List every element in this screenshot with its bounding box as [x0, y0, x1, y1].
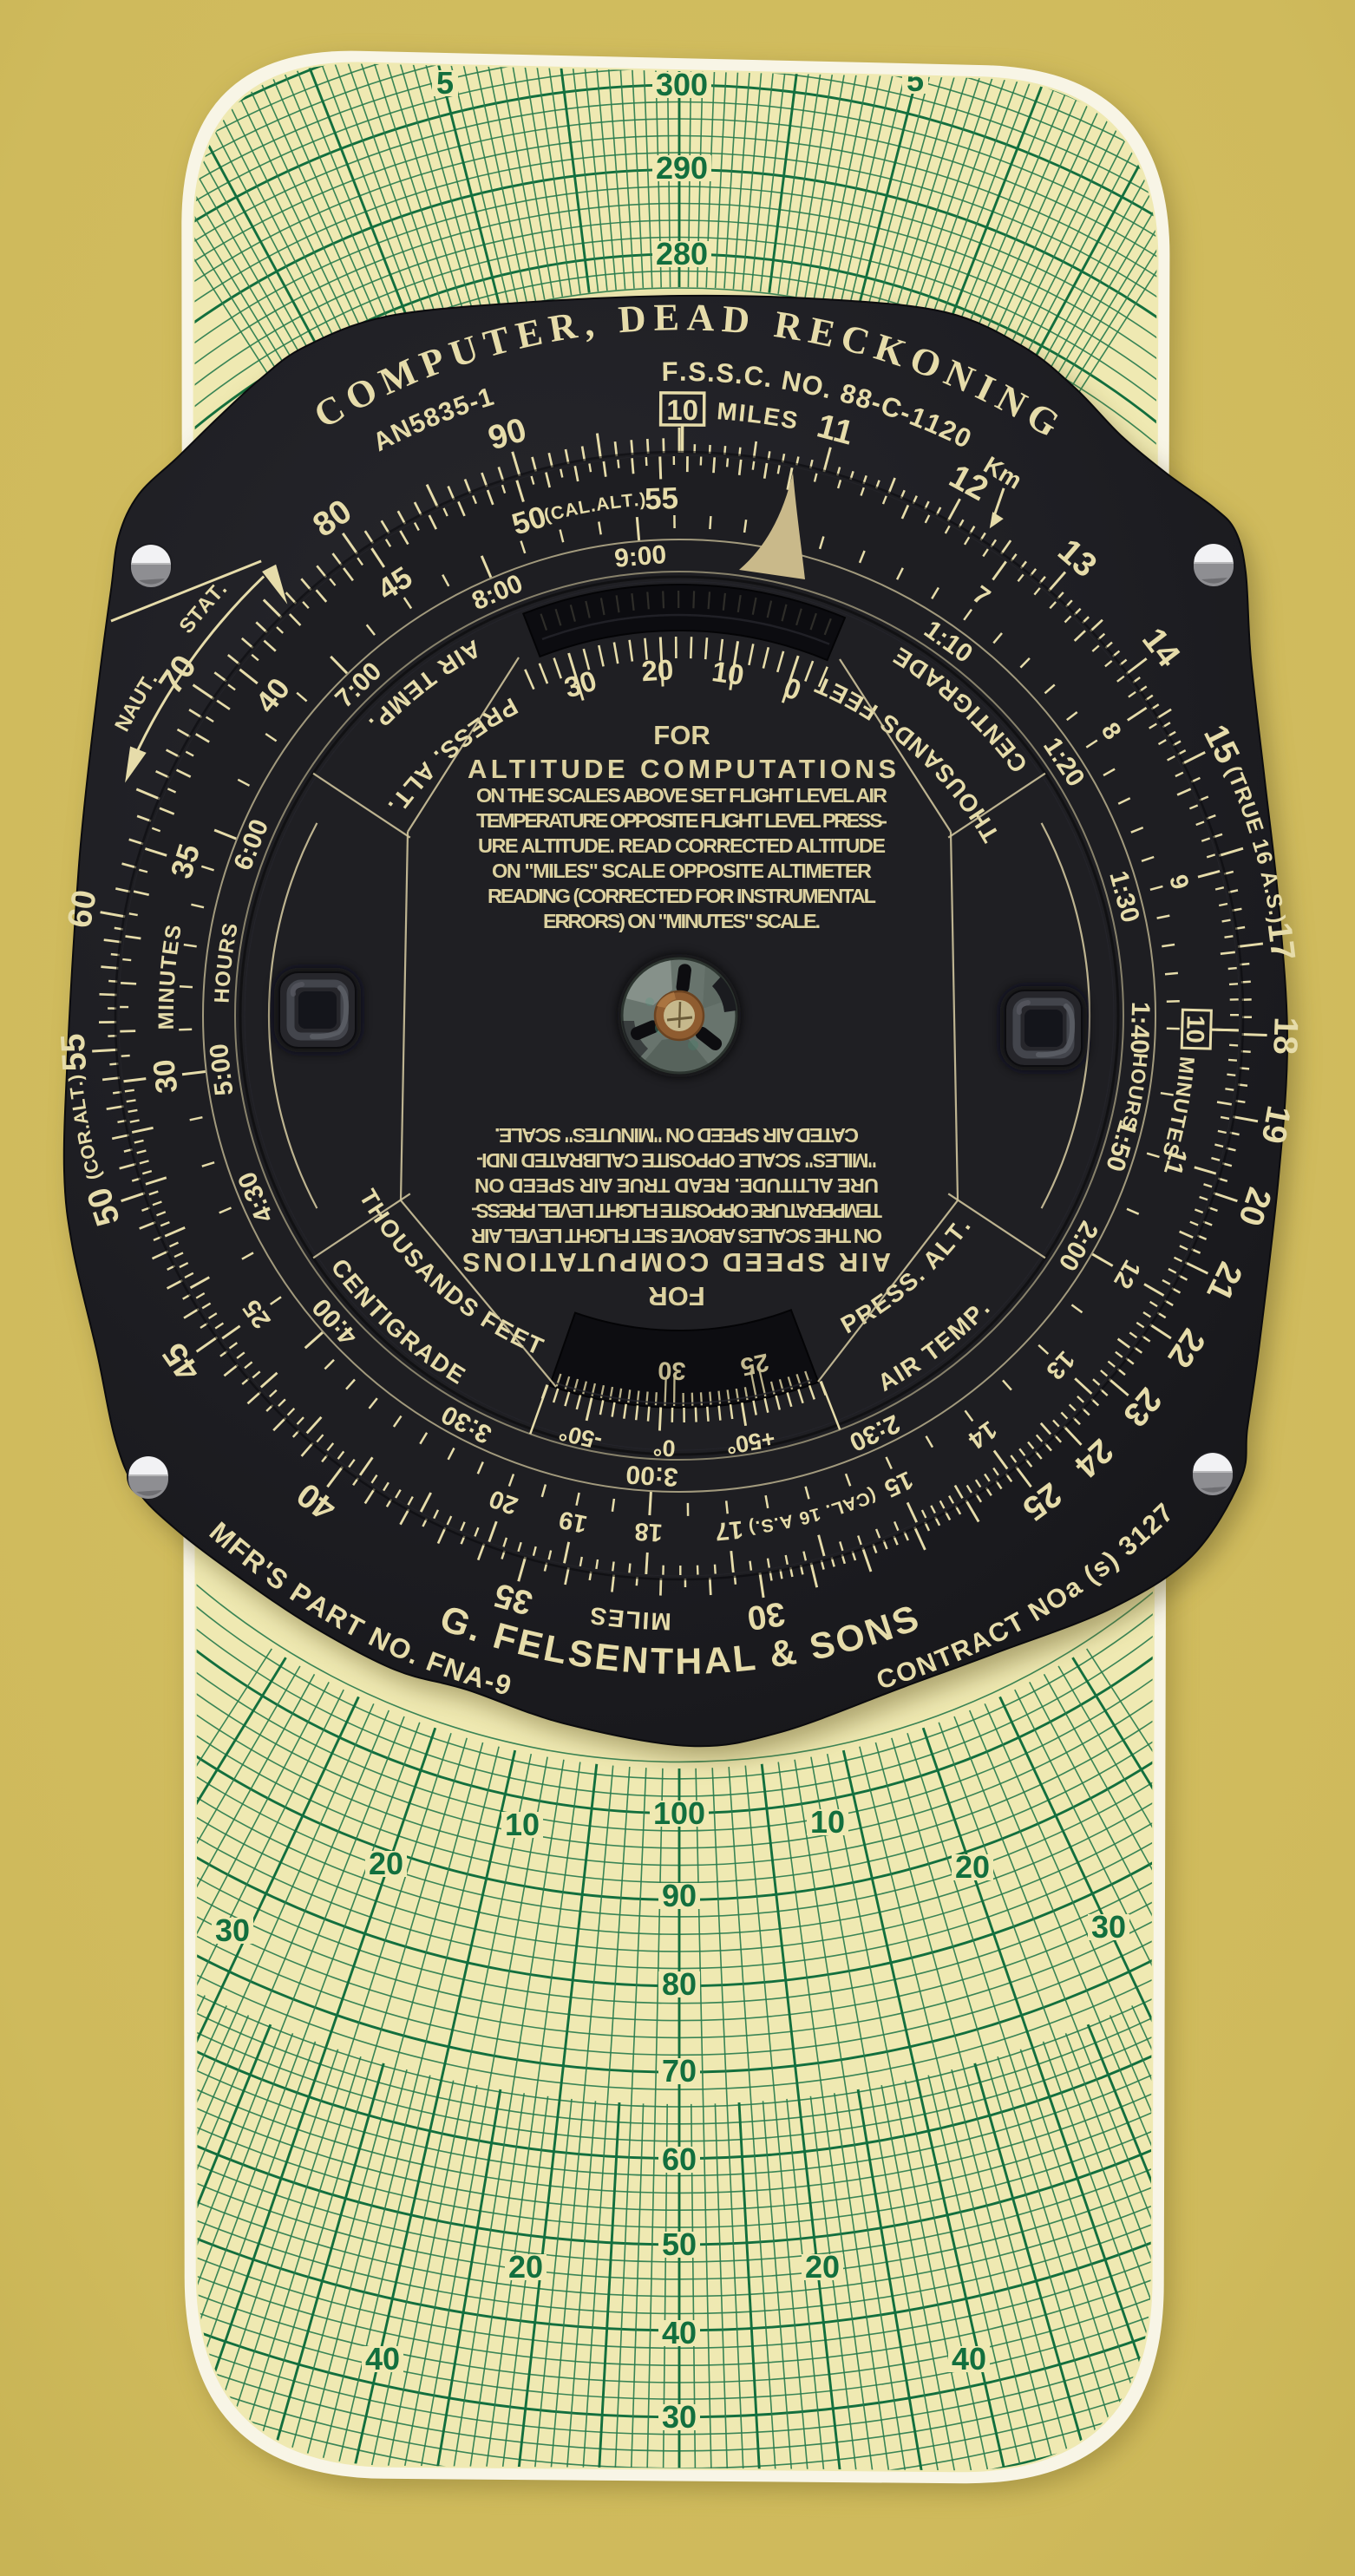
svg-text:CATED AIR SPEED ON "MINUTES" S: CATED AIR SPEED ON "MINUTES" SCALE. [494, 1124, 859, 1147]
svg-text:ERRORS) ON "MINUTES" SCALE.: ERRORS) ON "MINUTES" SCALE. [543, 910, 821, 932]
svg-text:M: M [1174, 1056, 1199, 1076]
svg-text:S: S [688, 356, 707, 388]
svg-text:50: 50 [662, 2226, 697, 2262]
svg-text:10: 10 [666, 394, 698, 426]
svg-text:10: 10 [810, 1804, 845, 1840]
svg-text:30: 30 [147, 1057, 184, 1095]
svg-text:1:40: 1:40 [1125, 1001, 1155, 1054]
svg-text:40: 40 [365, 2341, 400, 2377]
svg-text:T: T [621, 491, 634, 512]
svg-text:C: C [743, 360, 765, 392]
svg-text:70: 70 [662, 2053, 697, 2089]
svg-text:10: 10 [710, 655, 746, 691]
svg-text:A: A [703, 1640, 731, 1683]
svg-text:N: N [154, 987, 180, 1004]
svg-text:18: 18 [1266, 1017, 1304, 1056]
svg-text:10: 10 [1181, 1015, 1209, 1043]
svg-text:O: O [1126, 1067, 1150, 1085]
svg-text:3:00: 3:00 [625, 1460, 679, 1492]
svg-text:40: 40 [662, 2315, 697, 2350]
svg-text:M: M [651, 1608, 671, 1636]
svg-text:.: . [679, 356, 687, 387]
svg-text:55: 55 [644, 481, 678, 516]
svg-text:9:00: 9:00 [613, 540, 668, 573]
svg-text:20: 20 [508, 2249, 543, 2285]
svg-text:U: U [155, 970, 180, 987]
svg-text:I: I [154, 1004, 179, 1010]
svg-text:D: D [720, 297, 751, 342]
svg-text:E: E [592, 1637, 621, 1680]
svg-text:N: N [620, 1639, 650, 1682]
svg-text:"MILES" SCALE OPPOSITE CALIBRA: "MILES" SCALE OPPOSITE CALIBRATED INDI- [476, 1149, 877, 1172]
svg-text:H: H [211, 988, 235, 1004]
svg-text:T: T [156, 955, 181, 971]
svg-text:ON "MILES" SCALE OPPOSITE ALTI: ON "MILES" SCALE OPPOSITE ALTIMETER [492, 860, 872, 882]
svg-text:30: 30 [745, 1594, 788, 1637]
svg-text:E: E [606, 1605, 625, 1633]
svg-text:M: M [154, 1011, 179, 1030]
svg-text:30: 30 [658, 1356, 686, 1384]
svg-text:5: 5 [436, 65, 454, 101]
svg-text:URE ALTITUDE. READ CORRECTED: URE ALTITUDE. READ CORRECTED ALTITUDE [478, 834, 886, 857]
svg-text:20: 20 [640, 653, 674, 687]
svg-text:290: 290 [656, 150, 708, 186]
svg-text:20: 20 [955, 1849, 990, 1885]
svg-text:25: 25 [738, 1348, 771, 1381]
svg-text:20: 20 [369, 1846, 403, 1881]
svg-text:40: 40 [952, 2341, 986, 2377]
svg-text:TEMPERATURE OPPOSITE FLIGHT LE: TEMPERATURE OPPOSITE FLIGHT LEVEL PRESS- [471, 1200, 882, 1222]
svg-text:ON THE SCALES ABOVE SET FLIGHT: ON THE SCALES ABOVE SET FLIGHT LEVEL AIR [476, 784, 887, 807]
svg-text:90: 90 [662, 1878, 697, 1913]
svg-text:18: 18 [634, 1517, 664, 1546]
svg-text:L: L [730, 1638, 757, 1680]
svg-text:30: 30 [1091, 1909, 1126, 1945]
svg-text:S: S [715, 357, 735, 389]
svg-text:17: 17 [714, 1515, 744, 1546]
svg-text:FOR: FOR [648, 1281, 704, 1311]
svg-text:80: 80 [662, 1966, 697, 2002]
svg-text:TEMPERATURE OPPOSITE FLIGHT LE: TEMPERATURE OPPOSITE FLIGHT LEVEL PRESS- [476, 809, 887, 832]
svg-text:D: D [617, 297, 647, 341]
svg-text:H: H [1129, 1052, 1152, 1069]
svg-text:F: F [661, 356, 677, 387]
svg-text:E: E [653, 296, 679, 339]
svg-text:ON THE SCALES ABOVE SET FLIGHT: ON THE SCALES ABOVE SET FLIGHT LEVEL AIR [471, 1225, 882, 1247]
svg-text:.: . [707, 357, 716, 388]
svg-text:T: T [650, 1641, 673, 1683]
svg-text:ALTITUDE COMPUTATIONS: ALTITUDE COMPUTATIONS [468, 754, 896, 784]
svg-text:60: 60 [61, 887, 104, 931]
svg-text:55: 55 [55, 1032, 95, 1072]
svg-text:A: A [686, 296, 716, 339]
svg-text:H: H [675, 1642, 702, 1683]
svg-text:19: 19 [1254, 1102, 1297, 1146]
svg-text:0°: 0° [652, 1435, 676, 1461]
svg-text:10: 10 [505, 1807, 540, 1842]
svg-text:20: 20 [805, 2249, 840, 2285]
svg-text:30: 30 [215, 1912, 250, 1948]
svg-text:URE ALTITUDE. READ TRUE AIR S: URE ALTITUDE. READ TRUE AIR SPEED ON [475, 1174, 879, 1197]
svg-text:100: 100 [653, 1795, 705, 1831]
svg-text:FOR: FOR [653, 720, 710, 750]
svg-text:M: M [716, 397, 738, 426]
svg-text:280: 280 [656, 236, 708, 271]
svg-text:19: 19 [557, 1505, 590, 1538]
svg-text:60: 60 [662, 2141, 697, 2177]
svg-text:L: L [625, 1606, 641, 1634]
svg-text:U: U [213, 953, 238, 971]
svg-text:O: O [211, 970, 235, 988]
svg-text:5:00: 5:00 [205, 1043, 239, 1097]
svg-text:17: 17 [1260, 920, 1302, 962]
svg-text:300: 300 [656, 67, 708, 102]
svg-text:30: 30 [662, 2399, 697, 2435]
svg-text:READING (CORRECTED FOR INSTRUM: READING (CORRECTED FOR INSTRUMENTAL [488, 885, 876, 907]
